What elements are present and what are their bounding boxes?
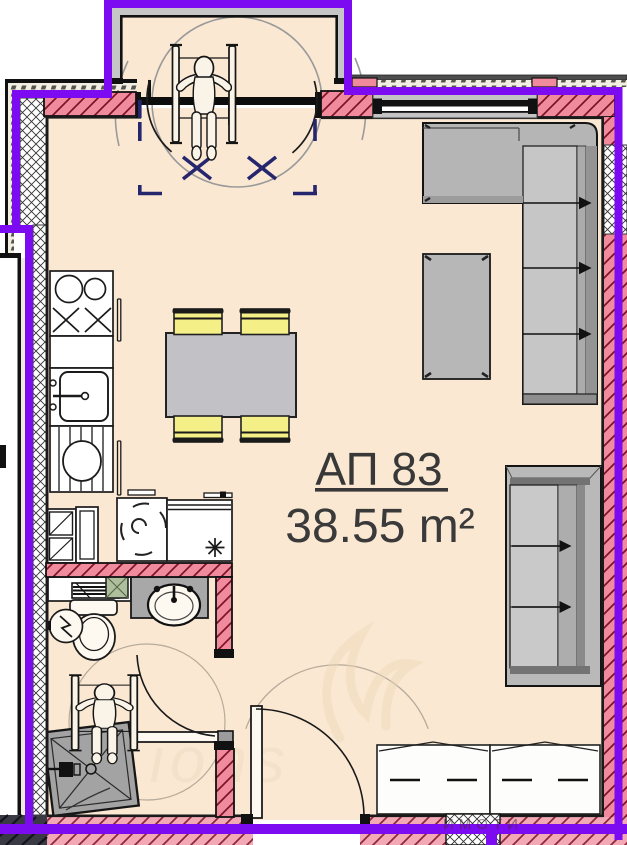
svg-text:ИМОТИ: ИМОТИ bbox=[443, 816, 523, 833]
svg-text:АП 83: АП 83 bbox=[315, 443, 442, 495]
svg-text:38.55 m²: 38.55 m² bbox=[285, 500, 474, 553]
